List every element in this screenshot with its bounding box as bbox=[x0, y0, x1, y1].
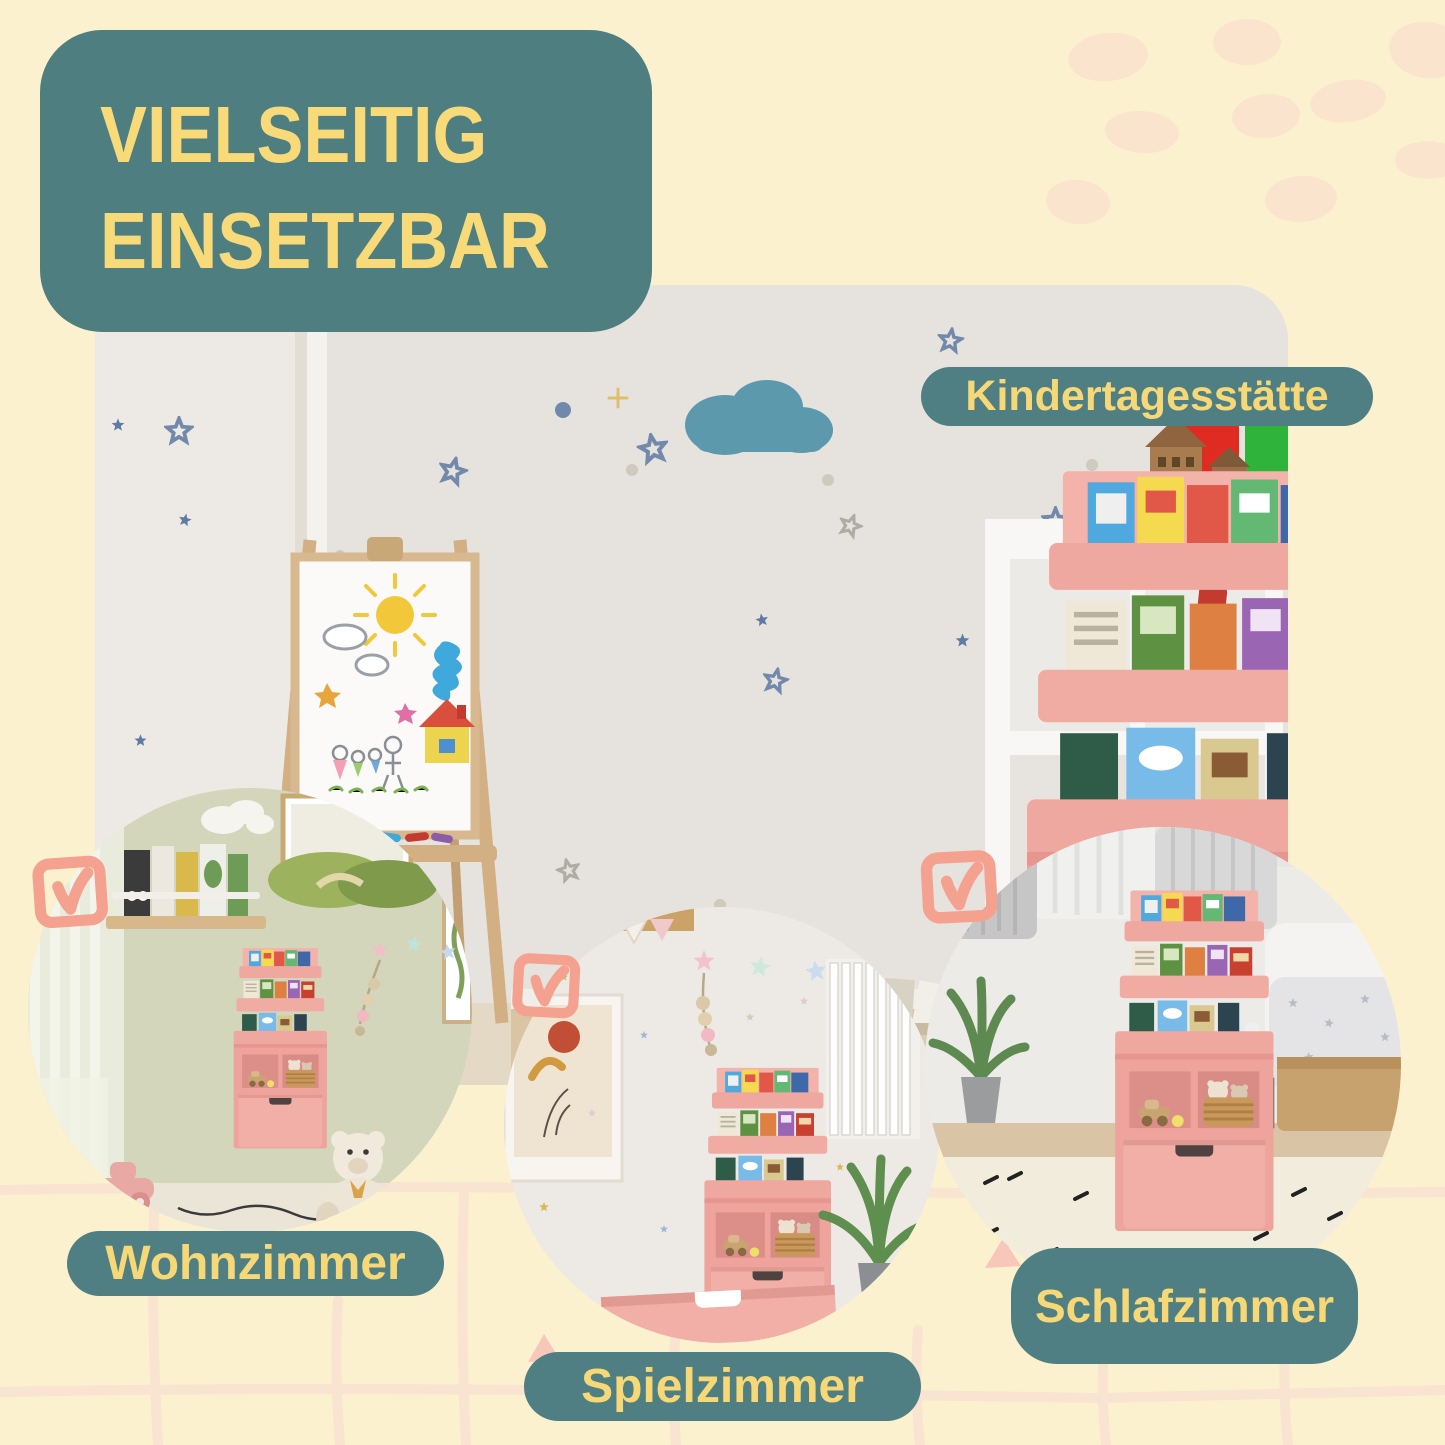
wall-bookshelf-ledge bbox=[106, 844, 266, 929]
title-line-2: EINSETZBAR bbox=[100, 188, 586, 294]
title-line-1: VIELSEITIG bbox=[100, 82, 586, 188]
plant-pot bbox=[961, 1077, 1001, 1123]
label-pill-playroom: Spielzimmer bbox=[524, 1352, 921, 1421]
infographic-canvas: VIELSEITIG EINSETZBAR Kindertagesstätte … bbox=[0, 0, 1445, 1445]
checkbox-check-icon bbox=[506, 944, 588, 1026]
title-banner: VIELSEITIG EINSETZBAR bbox=[40, 30, 652, 332]
label-pill-living-room: Wohnzimmer bbox=[67, 1231, 444, 1296]
label-pill-bedroom: Schlafzimmer bbox=[1011, 1248, 1358, 1364]
checkbox-check-icon bbox=[25, 845, 117, 937]
checkbox-check-icon bbox=[914, 840, 1006, 932]
label-pill-kindergarten: Kindertagesstätte bbox=[921, 367, 1373, 426]
peach-blobs bbox=[1044, 17, 1445, 227]
